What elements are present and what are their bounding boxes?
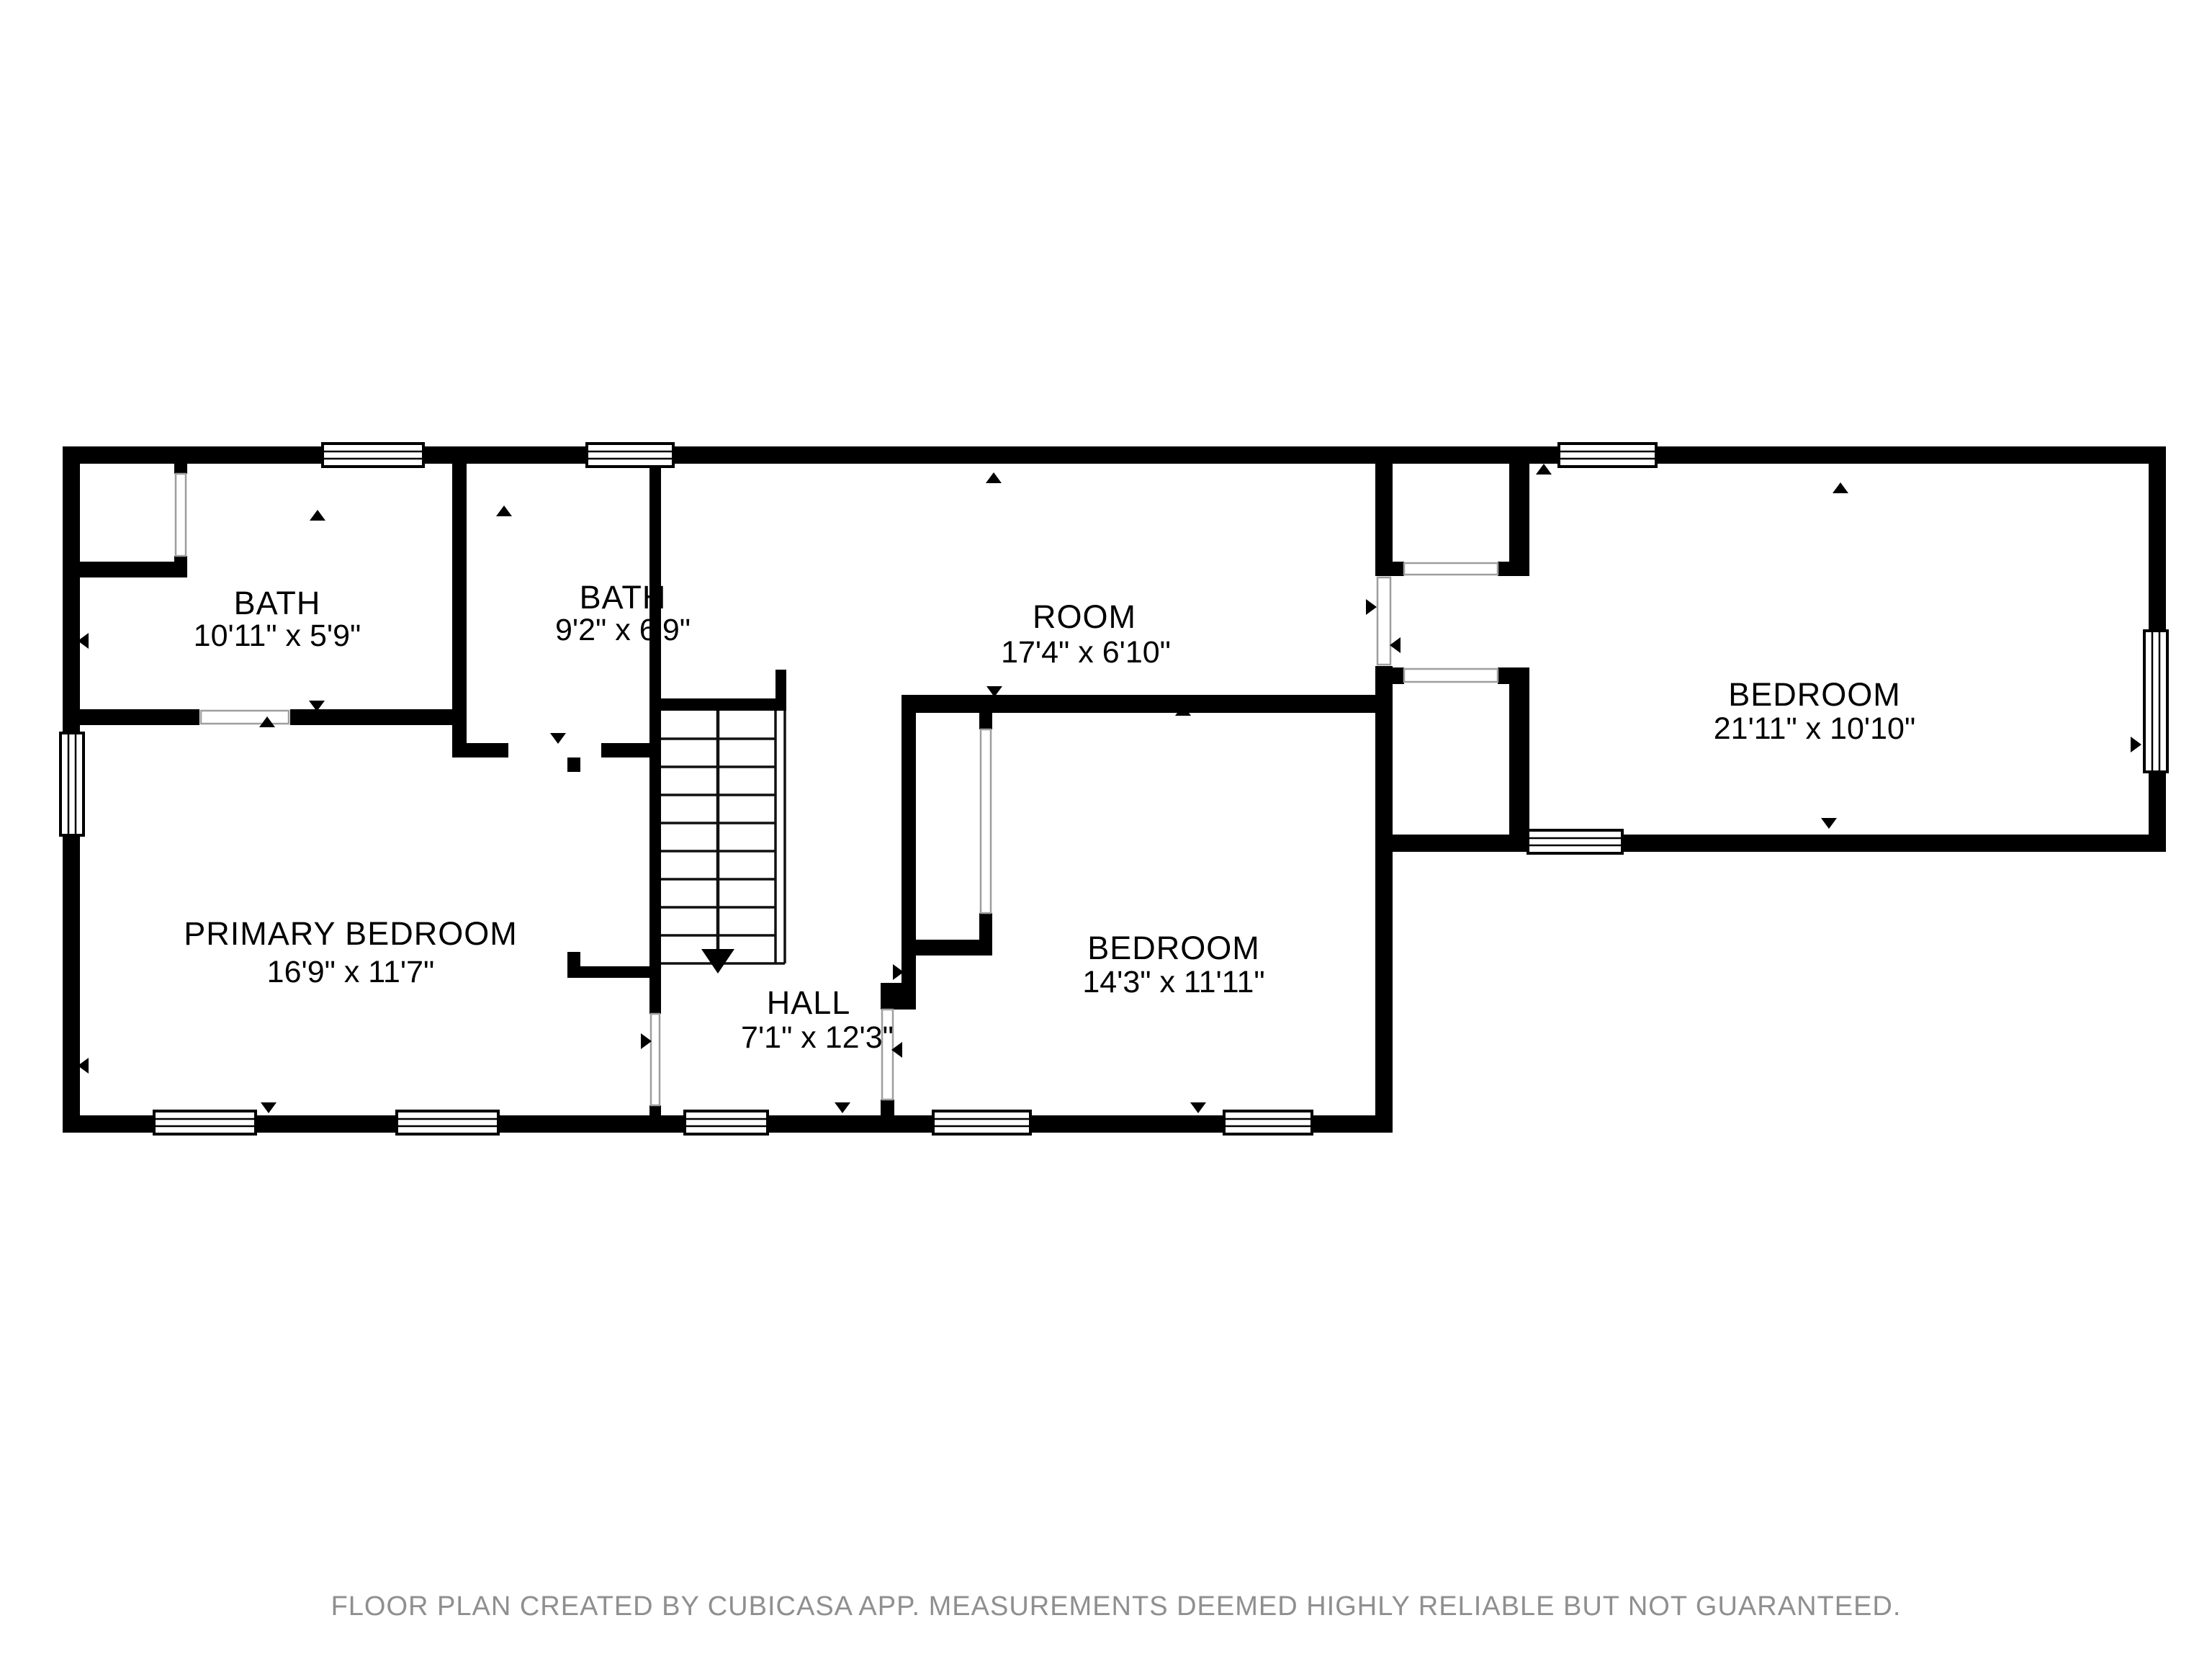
door-opening-closet-tl [176,474,186,556]
window-top-bedroom-right [1559,444,1656,467]
marker-up-bedroom-right [1833,482,1848,493]
window-bottom-primary-1 [154,1111,256,1134]
window-right-bedroom-right [2144,631,2167,772]
wall-room-right-upper [1375,464,1393,576]
room-label-bedroom-mid: BEDROOM [1087,930,1260,966]
wall-bedroom-right-left-lower [1509,667,1529,835]
room-label-bedroom-right: BEDROOM [1728,676,1901,713]
marker-down-bottom-primary [261,1102,276,1113]
window-bottom-bedroom-mid-2 [1224,1111,1312,1134]
stair-treads [661,739,785,963]
wall-stairs-right-stub [775,670,786,711]
marker-down-bedroom-right [1821,818,1837,829]
staircase [661,711,785,974]
window-bottom-primary-2 [397,1111,498,1134]
marker-down-bath2-door [550,733,566,744]
footer-disclaimer: FLOOR PLAN CREATED BY CUBICASA APP. MEAS… [331,1591,1902,1622]
room-dims-bedroom-right: 21'11" x 10'10" [1714,711,1915,746]
window-left-primary [60,733,84,835]
wall-closet-tl-right-upper-stub [174,464,187,474]
wall-hall-door-bottom-stub [881,1100,894,1117]
marker-up-room [986,472,1002,483]
wall-bath1-bottom-right [290,709,452,725]
marker-up-bedroom-right-left [1536,464,1552,475]
wall-bath1-bottom-left [80,709,199,725]
wall-bath-divider [452,464,467,757]
marker-right-room-door [1366,599,1377,615]
wall-stairs-top [661,698,786,711]
marker-up-bath1 [310,510,325,521]
window-top-bath1 [323,444,423,467]
room-label-room: ROOM [1033,598,1136,635]
marker-up-bath2 [496,505,512,516]
room-dims-bath-1: 10'11" x 5'9" [194,619,361,653]
wall-closet-low-top-left-shoulder [1375,667,1404,684]
stair-right-edge [775,711,785,963]
windows [60,444,2167,1134]
wall-closet-top-bottom-left-shoulder [1375,562,1404,576]
wall-hall-jog [881,983,916,1010]
room-dims-bedroom-mid: 14'3" x 11'11" [1082,965,1264,999]
wall-bath2-bottom-right [601,743,650,757]
wall-bedroom-right-left-upper [1509,464,1529,574]
window-bottom-bedroom-mid-1 [933,1111,1030,1134]
door-opening-room-to-passage [1377,577,1390,665]
stair-direction-arrow-head [701,949,734,974]
wall-primary-door-return-vertical [567,952,580,978]
wall-bedroom-right-bottom [1375,835,2166,852]
door-opening-bath1 [201,711,289,724]
room-labels: BATH 10'11" x 5'9" BATH 9'2" x 6'9" ROOM… [184,579,1915,1055]
wall-bath2-stub [567,757,580,772]
marker-right-wall-bedroom-right [2131,737,2141,752]
floor-plan-canvas: BATH 10'11" x 5'9" BATH 9'2" x 6'9" ROOM… [0,0,2212,1659]
room-dims-bath-2: 9'2" x 6'9" [555,613,691,647]
window-bottom-hall [685,1111,768,1134]
room-label-bath-1: BATH [234,585,321,621]
room-label-primary-bedroom: PRIMARY BEDROOM [184,915,517,952]
window-top-bath2 [587,444,673,467]
window-bottom-bedroom-right [1528,830,1622,853]
exterior-walls [63,446,2166,1133]
wall-primary-door-return-horizontal [567,966,661,978]
markers [78,464,2141,1113]
wall-hall-right [902,695,916,986]
cased-opening-closet-low [1404,669,1498,682]
wall-stairs-west [649,464,661,1014]
cased-opening-closet-top [1404,563,1498,575]
wall-bedroom-mid-connector [916,940,992,956]
marker-down-bottom-hall [835,1102,850,1113]
wall-room-bottom [902,695,1388,713]
room-dims-hall: 7'1" x 12'3" [741,1020,894,1055]
room-label-bath-2: BATH [580,579,667,616]
wall-closet-tl-bottom [63,562,187,577]
wall-bath2-bottom-left [452,743,508,757]
room-label-hall: HALL [767,984,851,1021]
room-dims-primary-bedroom: 16'9" x 11'7" [267,955,435,989]
page: { "colors": { "wall": "#000000", "floor"… [0,0,2212,1659]
wall-room-right-lower [1375,666,1393,1133]
wall-bedroom-mid-left-top-stub [979,713,992,729]
wall-stairs-west-bottom-stub [649,1105,661,1117]
room-dims-room: 17'4" x 6'10" [1001,635,1171,670]
cased-opening-bedroom-mid-left [981,729,991,913]
door-opening-primary-bedroom [651,1014,660,1105]
marker-down-bottom-bedroom-mid [1190,1102,1206,1113]
